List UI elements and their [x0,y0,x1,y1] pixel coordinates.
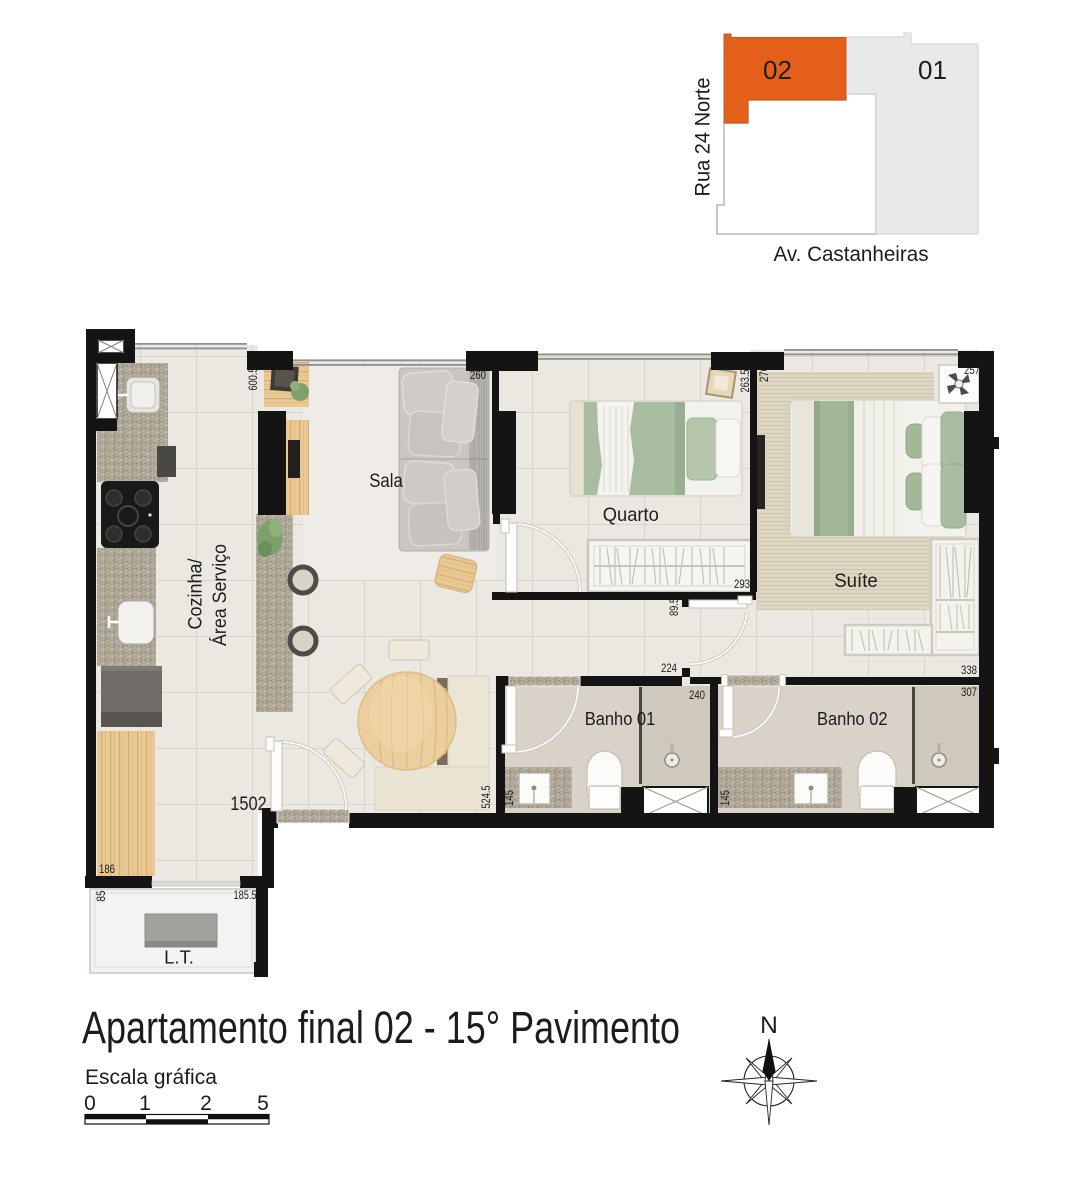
svg-text:224: 224 [661,661,677,675]
svg-text:1502: 1502 [230,793,267,815]
svg-text:524.5: 524.5 [479,785,493,808]
svg-text:Rua 24 Norte: Rua 24 Norte [691,78,715,197]
svg-text:600.5: 600.5 [246,367,260,390]
svg-text:1: 1 [139,1092,151,1115]
svg-text:260: 260 [470,368,486,382]
svg-text:02: 02 [763,55,792,85]
svg-text:145: 145 [502,790,516,806]
svg-text:307: 307 [961,685,977,699]
svg-text:89.5: 89.5 [667,598,681,616]
svg-text:5: 5 [257,1092,269,1115]
svg-text:0: 0 [84,1092,96,1115]
svg-text:185.5: 185.5 [234,888,257,902]
svg-text:Apartamento final 02 - 15° Pav: Apartamento final 02 - 15° Pavimento [82,1002,680,1053]
svg-text:Av. Castanheiras: Av. Castanheiras [774,242,929,266]
svg-text:257: 257 [964,363,980,377]
svg-text:Banho 01: Banho 01 [585,708,656,729]
svg-text:L.T.: L.T. [164,947,194,968]
svg-text:293: 293 [734,577,750,591]
svg-text:Quarto: Quarto [603,504,659,526]
svg-text:Banho 02: Banho 02 [817,708,888,729]
svg-text:276: 276 [757,366,771,382]
svg-text:338: 338 [961,663,977,677]
svg-text:Sala: Sala [369,471,403,492]
svg-text:N: N [760,1012,778,1039]
svg-text:Escala gráfica: Escala gráfica [85,1066,217,1089]
svg-text:01: 01 [918,55,947,85]
svg-text:2: 2 [200,1092,212,1115]
svg-text:145: 145 [718,790,732,806]
svg-text:240: 240 [689,688,705,702]
svg-text:Cozinha/: Cozinha/ [186,558,207,630]
svg-text:Suíte: Suíte [834,570,878,592]
svg-text:263.5: 263.5 [738,369,752,392]
svg-text:Área Serviço: Área Serviço [210,544,231,646]
svg-text:85: 85 [94,890,108,901]
svg-text:186: 186 [99,862,115,876]
